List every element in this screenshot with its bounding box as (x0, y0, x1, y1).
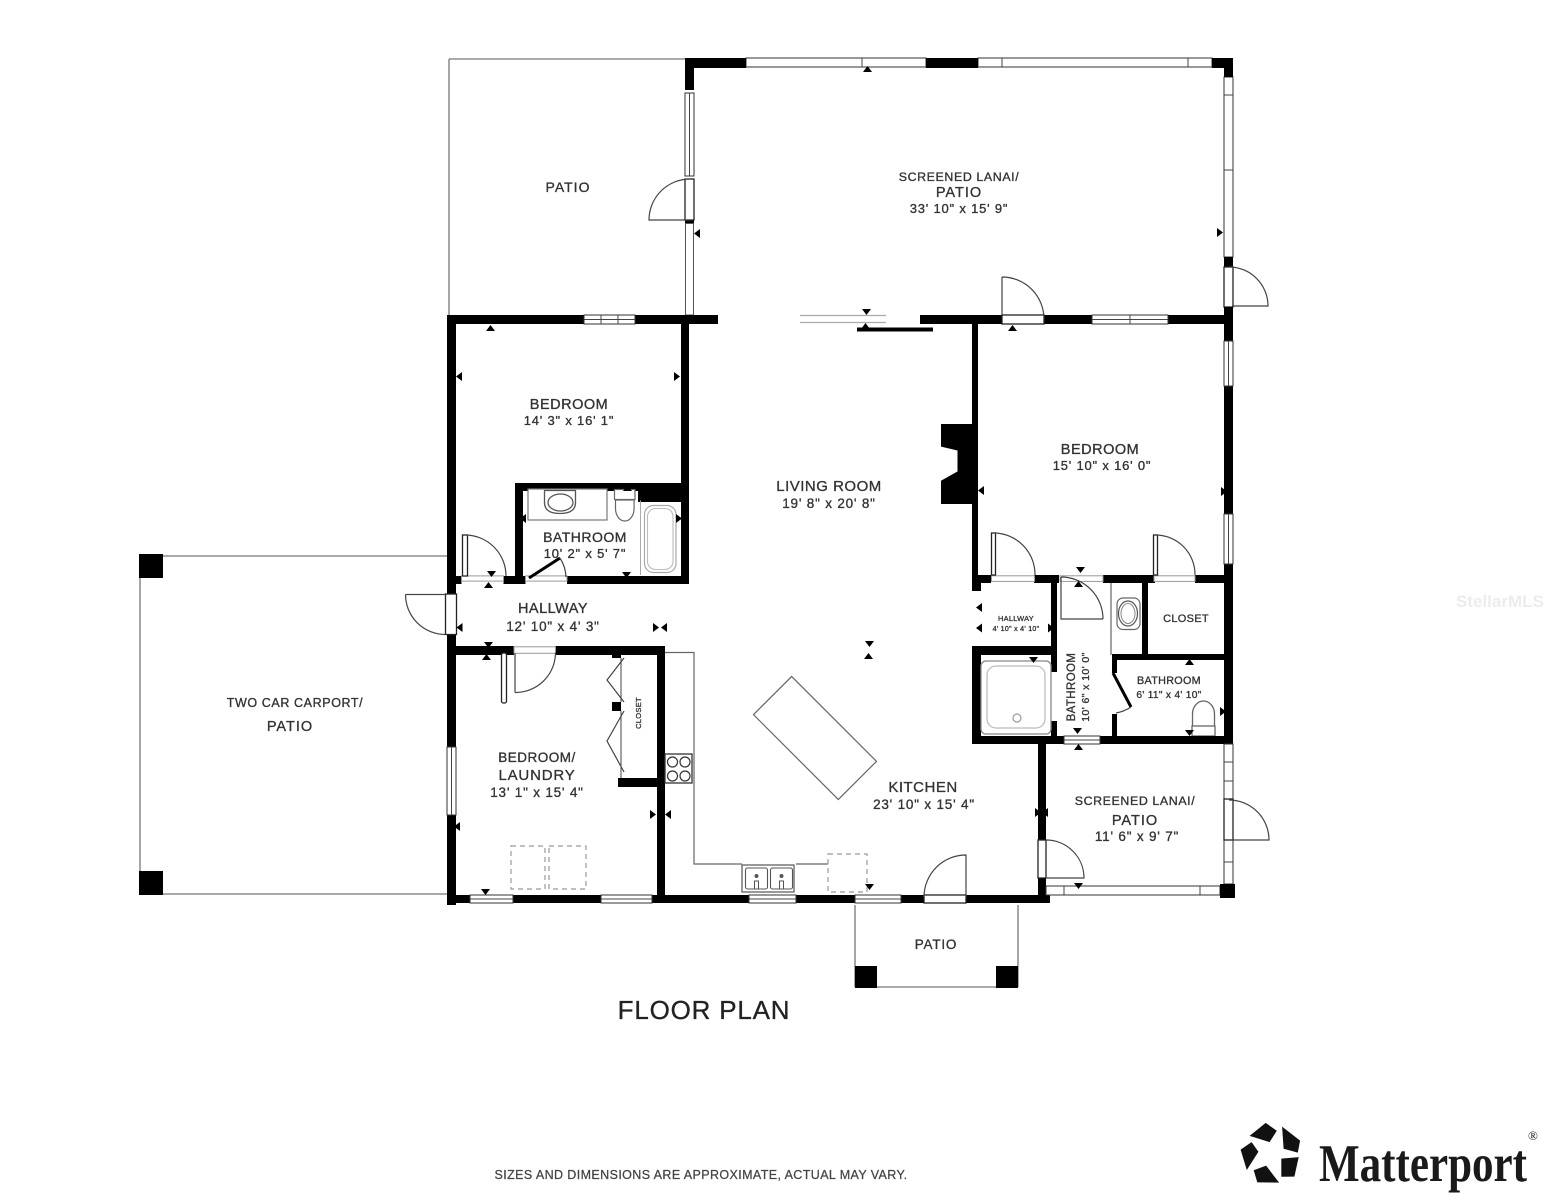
svg-text:TWO CAR CARPORT/: TWO CAR CARPORT/ (227, 696, 363, 710)
svg-text:FLOOR PLAN: FLOOR PLAN (618, 995, 791, 1025)
svg-text:13' 1" x 15' 4": 13' 1" x 15' 4" (490, 785, 584, 800)
svg-text:CLOSET: CLOSET (1163, 613, 1209, 625)
svg-text:LIVING ROOM: LIVING ROOM (776, 478, 882, 495)
svg-text:4' 10" x 4' 10": 4' 10" x 4' 10" (993, 626, 1040, 633)
svg-text:10' 6" x 10' 0": 10' 6" x 10' 0" (1080, 652, 1092, 721)
svg-text:19' 8" x 20' 8": 19' 8" x 20' 8" (782, 496, 876, 511)
svg-text:HALLWAY: HALLWAY (998, 614, 1034, 623)
svg-text:23' 10" x 15' 4": 23' 10" x 15' 4" (873, 797, 975, 812)
svg-text:6' 11" x 4' 10": 6' 11" x 4' 10" (1136, 690, 1201, 701)
svg-text:®: ® (1528, 1128, 1538, 1143)
svg-text:StellarMLS: StellarMLS (1456, 592, 1544, 611)
svg-text:BEDROOM: BEDROOM (1061, 442, 1139, 458)
svg-text:HALLWAY: HALLWAY (518, 601, 588, 617)
svg-text:11' 6" x 9' 7": 11' 6" x 9' 7" (1095, 829, 1179, 844)
svg-text:PATIO: PATIO (1112, 813, 1158, 829)
svg-text:KITCHEN: KITCHEN (888, 779, 957, 796)
svg-text:BATHROOM: BATHROOM (1066, 653, 1078, 722)
svg-text:12' 10" x 4' 3": 12' 10" x 4' 3" (506, 619, 600, 634)
svg-text:10' 2" x 5' 7": 10' 2" x 5' 7" (544, 546, 627, 561)
svg-text:BATHROOM: BATHROOM (543, 529, 627, 545)
svg-text:PATIO: PATIO (546, 179, 591, 195)
svg-text:SCREENED LANAI/: SCREENED LANAI/ (899, 170, 1020, 184)
svg-text:15' 10" x 16' 0": 15' 10" x 16' 0" (1053, 458, 1152, 473)
svg-text:PATIO: PATIO (915, 937, 958, 952)
svg-text:SIZES AND DIMENSIONS ARE APPRO: SIZES AND DIMENSIONS ARE APPROXIMATE, AC… (495, 1168, 908, 1182)
svg-text:BEDROOM/: BEDROOM/ (498, 750, 576, 765)
svg-text:Matterport: Matterport (1319, 1135, 1527, 1193)
svg-text:14' 3" x 16' 1": 14' 3" x 16' 1" (524, 413, 615, 428)
svg-text:BEDROOM: BEDROOM (530, 397, 608, 413)
svg-text:LAUNDRY: LAUNDRY (498, 767, 575, 784)
svg-text:BATHROOM: BATHROOM (1137, 675, 1201, 687)
svg-text:PATIO: PATIO (267, 719, 313, 735)
svg-text:CLOSET: CLOSET (634, 697, 643, 729)
svg-text:SCREENED LANAI/: SCREENED LANAI/ (1075, 794, 1196, 808)
svg-text:PATIO: PATIO (936, 185, 982, 201)
svg-text:33' 10" x 15' 9": 33' 10" x 15' 9" (910, 201, 1009, 216)
